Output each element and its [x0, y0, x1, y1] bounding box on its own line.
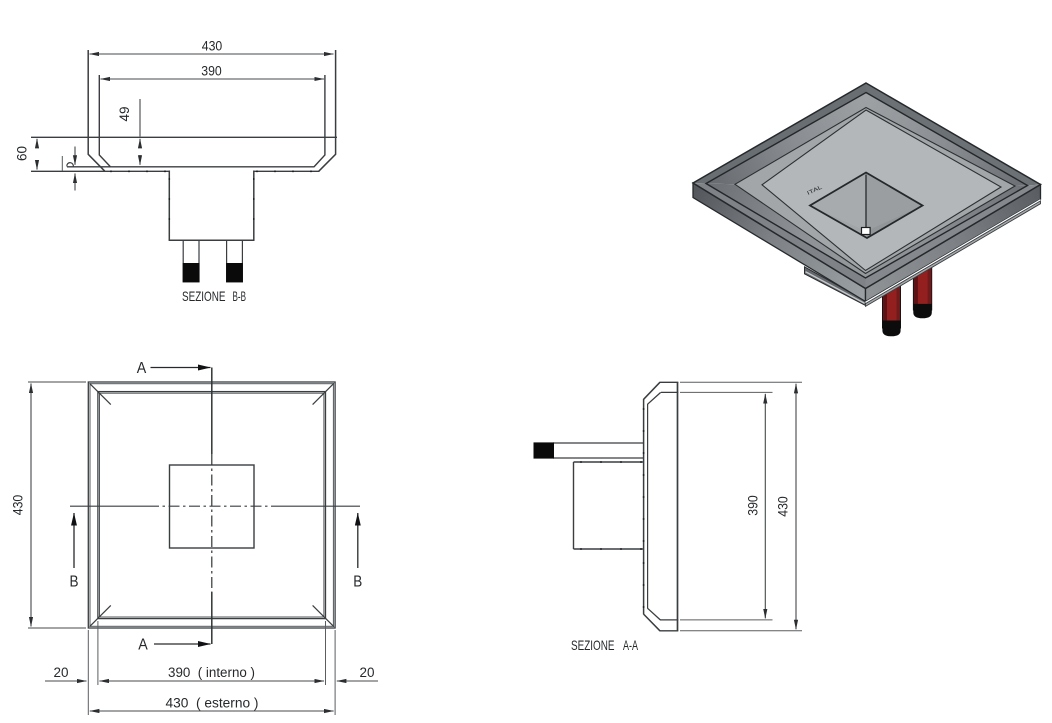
svg-text:390: 390 [746, 495, 761, 516]
svg-text:A-A: A-A [623, 637, 638, 653]
svg-text:60: 60 [15, 146, 30, 161]
svg-text:B: B [353, 574, 362, 591]
svg-text:390 ( interno ): 390 ( interno ) [168, 665, 255, 680]
svg-text:390: 390 [201, 64, 222, 79]
svg-text:430: 430 [11, 495, 26, 516]
svg-text:B-B: B-B [233, 288, 247, 304]
svg-text:20: 20 [54, 665, 69, 680]
svg-text:430: 430 [776, 496, 791, 517]
svg-text:SEZIONE: SEZIONE [182, 288, 226, 304]
svg-text:49: 49 [117, 107, 132, 122]
svg-text:430 ( esterno ): 430 ( esterno ) [166, 696, 259, 711]
svg-text:A: A [138, 636, 148, 653]
svg-text:B: B [70, 574, 79, 591]
svg-text:A: A [137, 360, 147, 377]
svg-text:20: 20 [360, 665, 375, 680]
svg-text:SEZIONE: SEZIONE [571, 637, 615, 653]
svg-text:430: 430 [202, 39, 223, 54]
